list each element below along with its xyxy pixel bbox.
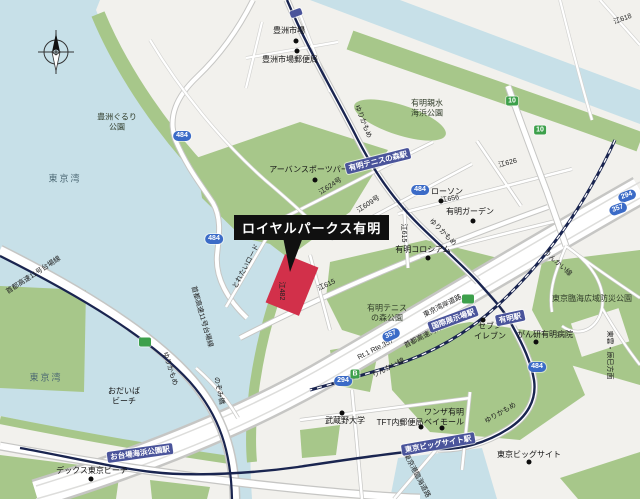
route-shield-green: 10 [534, 126, 546, 135]
poi-dot [481, 318, 486, 323]
line-name-label: とれたいロード [232, 243, 262, 290]
poi-dot [527, 460, 532, 465]
poi-label: がん研有明病院 [517, 330, 573, 340]
station-label: 有明駅 [495, 310, 525, 327]
line-name-label: 東京港臨海道路 [401, 452, 431, 499]
poi-label: ローソン [431, 187, 463, 197]
poi-dot [439, 199, 444, 204]
poi-dot [419, 425, 424, 430]
area-map-ariake: 東京湾東京湾豊洲ぐるり 公園有明親水 海浜公園有明テニス の森公園東京臨海広域防… [0, 0, 640, 499]
route-shield-blue: 484 [205, 234, 223, 244]
poi-label: 豊洲市場郵便局 [262, 55, 318, 65]
route-shield-blue: 294 [617, 188, 637, 203]
route-shield-green: B [350, 370, 359, 379]
station-marker [289, 8, 303, 19]
water-label: 東京湾 [48, 174, 81, 185]
poi-dot [340, 411, 345, 416]
road-number-label: 江624号 [318, 176, 344, 197]
poi-label: 有明コロシアム [395, 245, 450, 255]
highway-exit-marker [462, 295, 474, 304]
poi-label: 武蔵野大学 [325, 416, 365, 426]
line-name-label: 首都高速11号台場線 [188, 285, 214, 348]
poi-label: 有明ガーデン [446, 207, 494, 217]
route-shield-blue: 294 [334, 376, 352, 386]
poi-label: TFT内郵便局 [377, 418, 424, 428]
park-label: 東京臨海広域防災公園 [552, 294, 632, 304]
line-name-label: ゆりかもめ [160, 351, 179, 387]
road-number-label: 江482 [277, 282, 285, 301]
line-name-label: ゆりかもめ [427, 218, 458, 249]
poi-dot [294, 39, 299, 44]
poi-dot [440, 426, 445, 431]
line-name-label: 首都高速11号台場線 [5, 255, 63, 297]
poi-label: アーバンスポーツパーク [269, 165, 357, 175]
route-shield-blue: 484 [411, 185, 429, 195]
water-label: 東京湾 [29, 373, 62, 384]
road-number-label: 江618 [613, 13, 633, 27]
route-shield-blue: 484 [528, 362, 546, 372]
station-label: 有明テニスの森駅 [345, 148, 412, 175]
road-number-label: 江609号 [356, 194, 382, 215]
line-name-label: りんかい線 [541, 249, 573, 279]
road-number-label: 江615 [399, 224, 407, 243]
callout-royal-parks-ariake: ロイヤルパークス有明 [234, 215, 389, 240]
poi-label: 東京ビッグサイト [497, 450, 561, 460]
poi-label: 豊洲市場 [273, 26, 305, 36]
line-name-label: ゆりかもめ [352, 104, 373, 140]
poi-dot [426, 256, 431, 261]
line-name-label: のぞみ橋 [211, 376, 225, 405]
road-number-label: 江615 [317, 278, 337, 294]
label-layer: 東京湾東京湾豊洲ぐるり 公園有明親水 海浜公園有明テニス の森公園東京臨海広域防… [0, 0, 640, 499]
station-label: 東京ビッグサイト駅 [401, 432, 475, 456]
line-name-label: ゆりかもめ [484, 402, 519, 427]
poi-dot [295, 49, 300, 54]
park-label: 有明親水 海浜公園 [411, 98, 443, 117]
poi-label: デックス東京ビーチ [56, 466, 128, 476]
route-shield-blue: 357 [608, 201, 628, 216]
highway-exit-marker [139, 338, 151, 347]
poi-dot [471, 219, 476, 224]
line-name-label: 東雲・辰巳方面 [605, 331, 613, 380]
poi-label: おだいば ビーチ [108, 386, 140, 405]
poi-label: ワンザ有明 ベイモール [424, 407, 464, 426]
park-label: 有明テニス の森公園 [367, 303, 407, 322]
line-name-label: りんかい線 [372, 357, 407, 380]
road-number-label: 江626 [498, 158, 518, 171]
poi-dot [534, 340, 539, 345]
poi-dot [89, 477, 94, 482]
station-label: お台場海浜公園駅 [107, 443, 174, 463]
park-label: 豊洲ぐるり 公園 [97, 112, 137, 131]
route-shield-blue: 484 [173, 131, 191, 141]
route-shield-green: 10 [506, 97, 518, 106]
poi-dot [313, 178, 318, 183]
